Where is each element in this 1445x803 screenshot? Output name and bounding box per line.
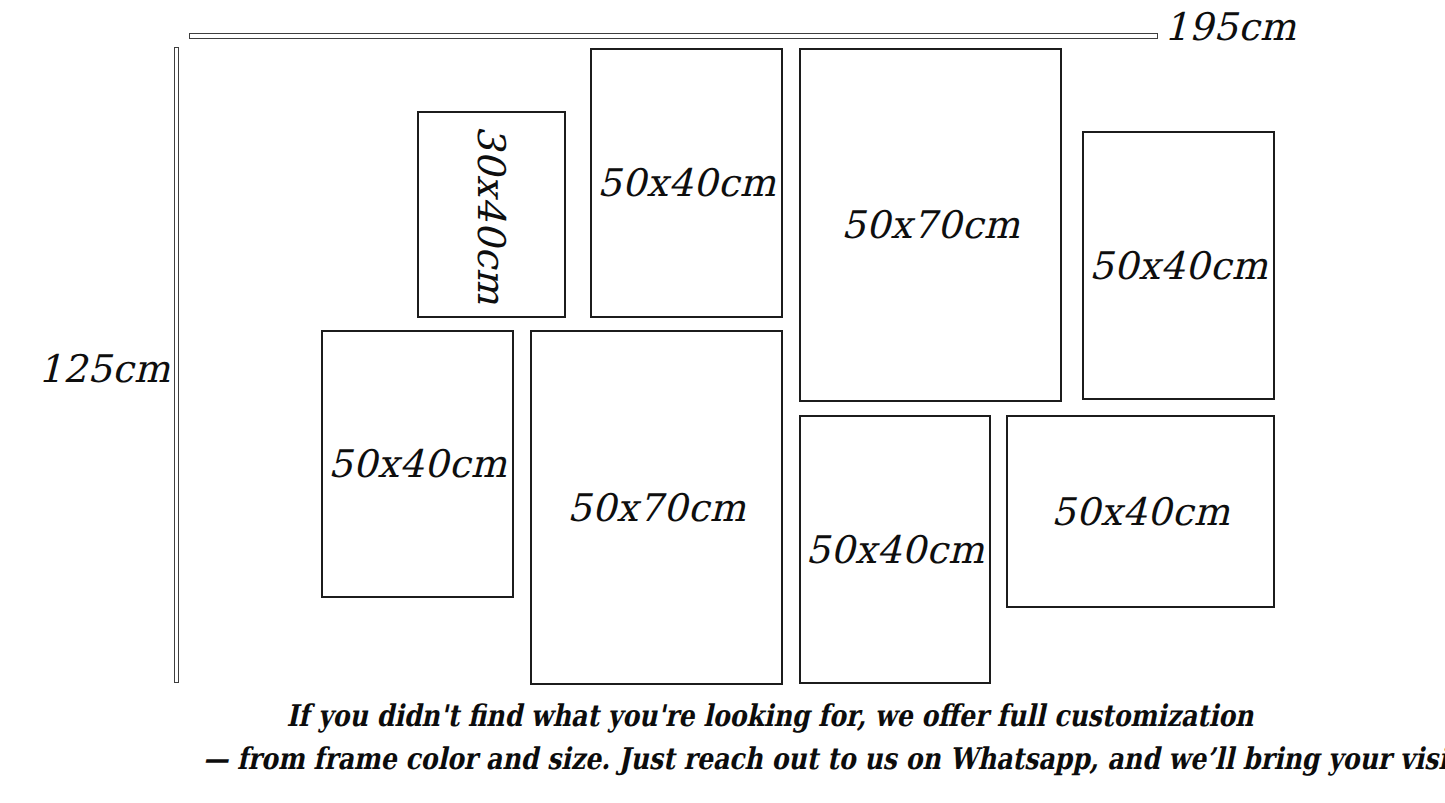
customization-note: If you didn't find what you're looking f… [0, 694, 1445, 780]
height-dimension-line [174, 47, 179, 683]
frame-50x70cm-top: 50x70cm [799, 48, 1062, 402]
frame-size-label: 50x40cm [328, 442, 507, 486]
frame-50x40cm-bottom-right: 50x40cm [1006, 415, 1275, 608]
frame-size-label: 30x40cm [470, 125, 514, 304]
width-dimension-label: 195cm [1164, 5, 1296, 49]
frame-size-label: 50x70cm [841, 203, 1020, 247]
height-dimension-label: 125cm [38, 347, 160, 391]
gallery-wall-diagram: 195cm 125cm 30x40cm 50x40cm 50x70cm 50x4… [0, 0, 1445, 803]
width-dimension-line [189, 33, 1158, 39]
customization-note-line-2: — from frame color and size. Just reach … [203, 737, 1337, 780]
frame-50x40cm-bottom-middle: 50x40cm [799, 415, 991, 684]
customization-note-line-1: If you didn't find what you're looking f… [203, 694, 1337, 737]
frame-50x70cm-bottom-center: 50x70cm [530, 330, 783, 685]
frame-size-label: 50x40cm [806, 528, 985, 572]
frame-size-label: 50x40cm [597, 161, 776, 205]
frame-size-label: 50x40cm [1051, 490, 1230, 534]
frame-50x40cm-top-right: 50x40cm [1082, 131, 1275, 400]
frame-30x40cm: 30x40cm [417, 111, 566, 318]
frame-50x40cm-mid-left: 50x40cm [321, 330, 514, 598]
frame-50x40cm-top-middle: 50x40cm [590, 48, 783, 318]
frame-size-label: 50x40cm [1089, 244, 1268, 288]
frame-size-label: 50x70cm [567, 486, 746, 530]
